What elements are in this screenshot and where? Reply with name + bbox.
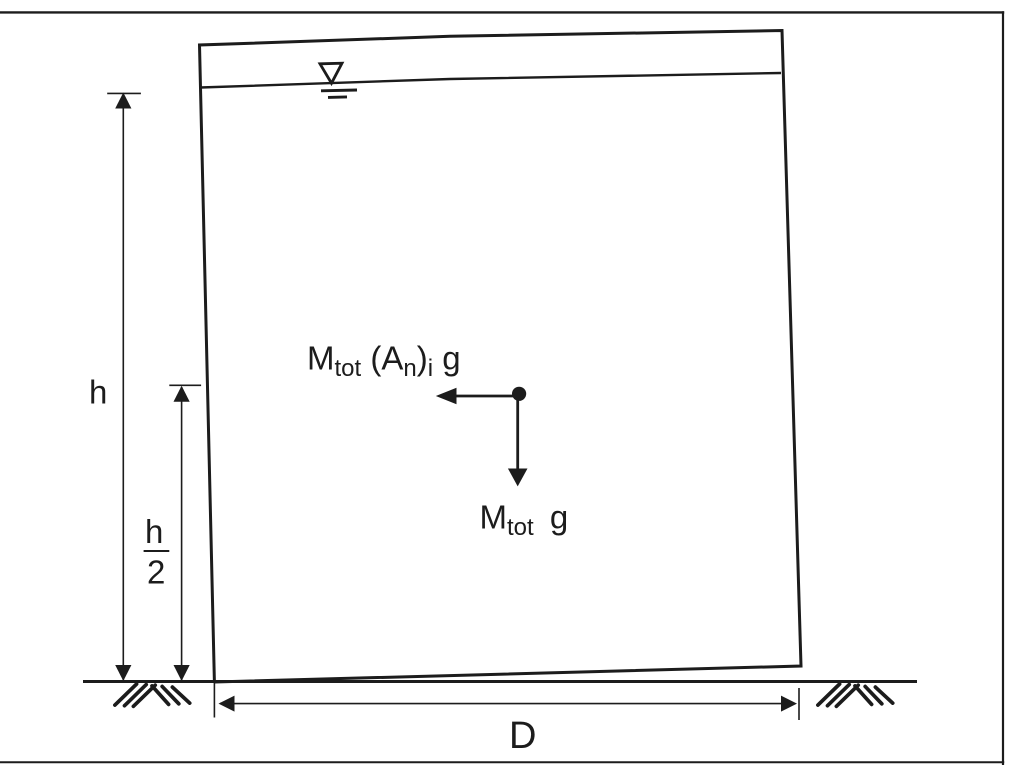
svg-text:Mtot (An)i g: Mtot (An)i g <box>307 340 461 383</box>
svg-text:h: h <box>89 374 107 411</box>
svg-text:h: h <box>145 513 163 550</box>
svg-text:Mtot g: Mtot g <box>480 499 569 542</box>
svg-text:D: D <box>509 715 536 757</box>
svg-text:2: 2 <box>147 554 165 591</box>
